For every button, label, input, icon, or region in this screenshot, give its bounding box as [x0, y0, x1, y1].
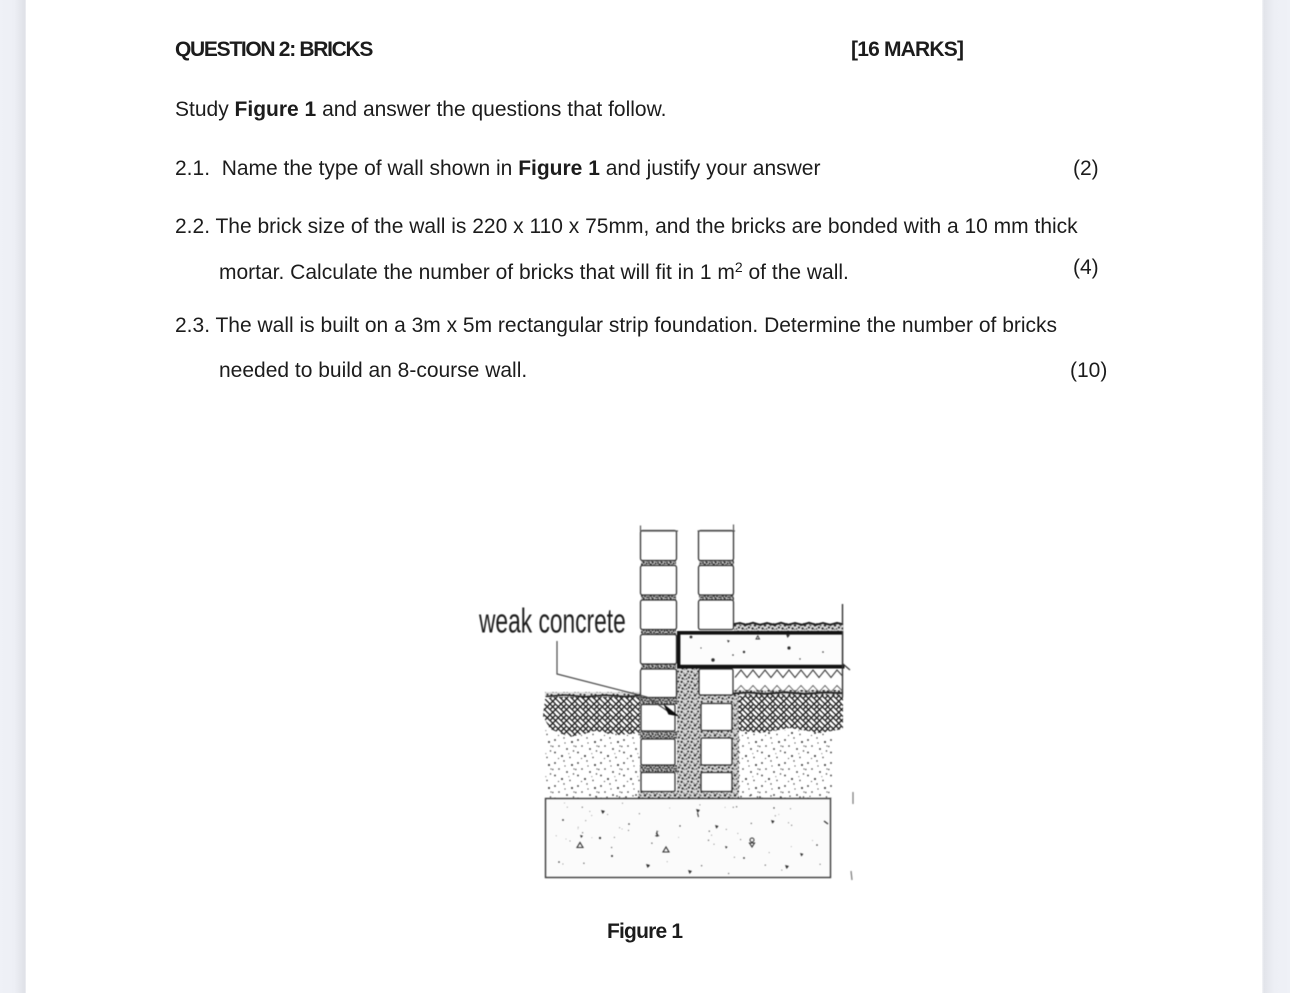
svg-text:weak concrete: weak concrete: [478, 603, 626, 641]
